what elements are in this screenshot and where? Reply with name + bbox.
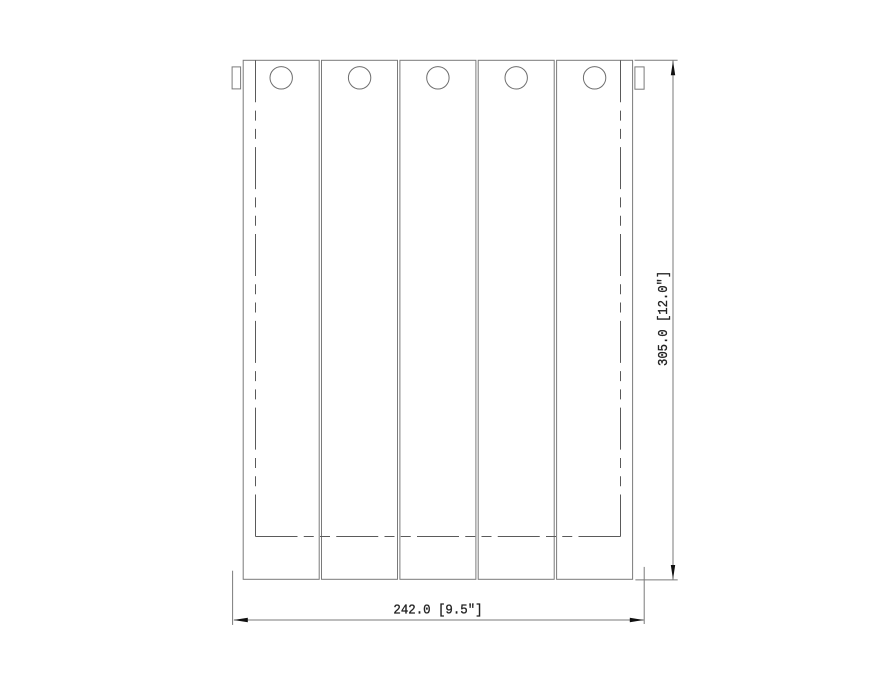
svg-text:242.0 [9.5"]: 242.0 [9.5"] — [393, 602, 482, 618]
svg-text:305.0 [12.0"]: 305.0 [12.0"] — [656, 271, 672, 366]
